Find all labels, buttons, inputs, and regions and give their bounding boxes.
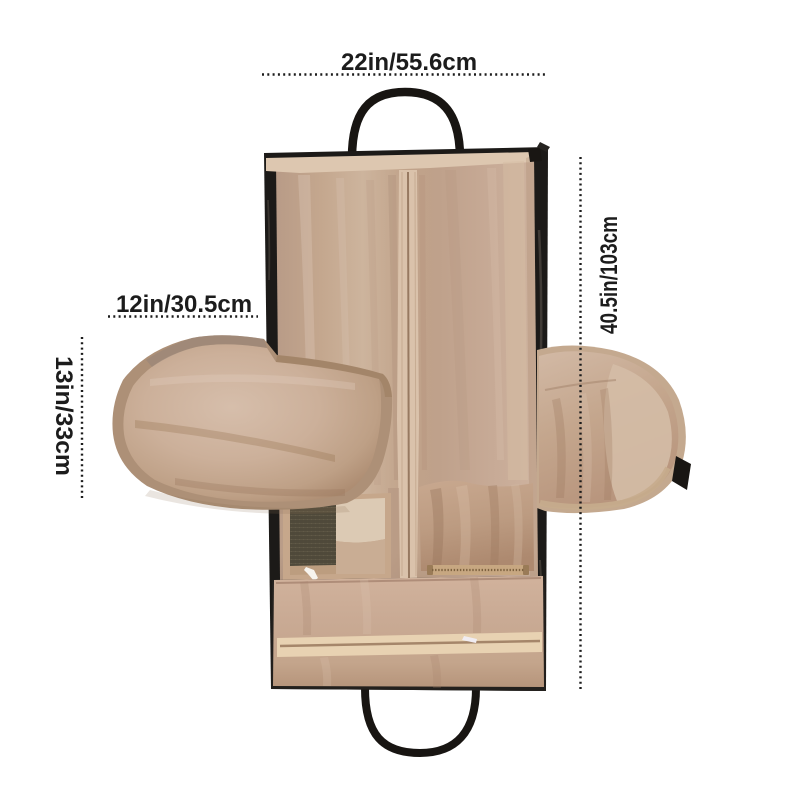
svg-text:12in/30.5cm: 12in/30.5cm [116, 291, 252, 318]
svg-text:40.5in/103cm: 40.5in/103cm [596, 216, 623, 334]
svg-text:22in/55.6cm: 22in/55.6cm [341, 49, 477, 76]
svg-text:13in/33cm: 13in/33cm [50, 356, 77, 476]
